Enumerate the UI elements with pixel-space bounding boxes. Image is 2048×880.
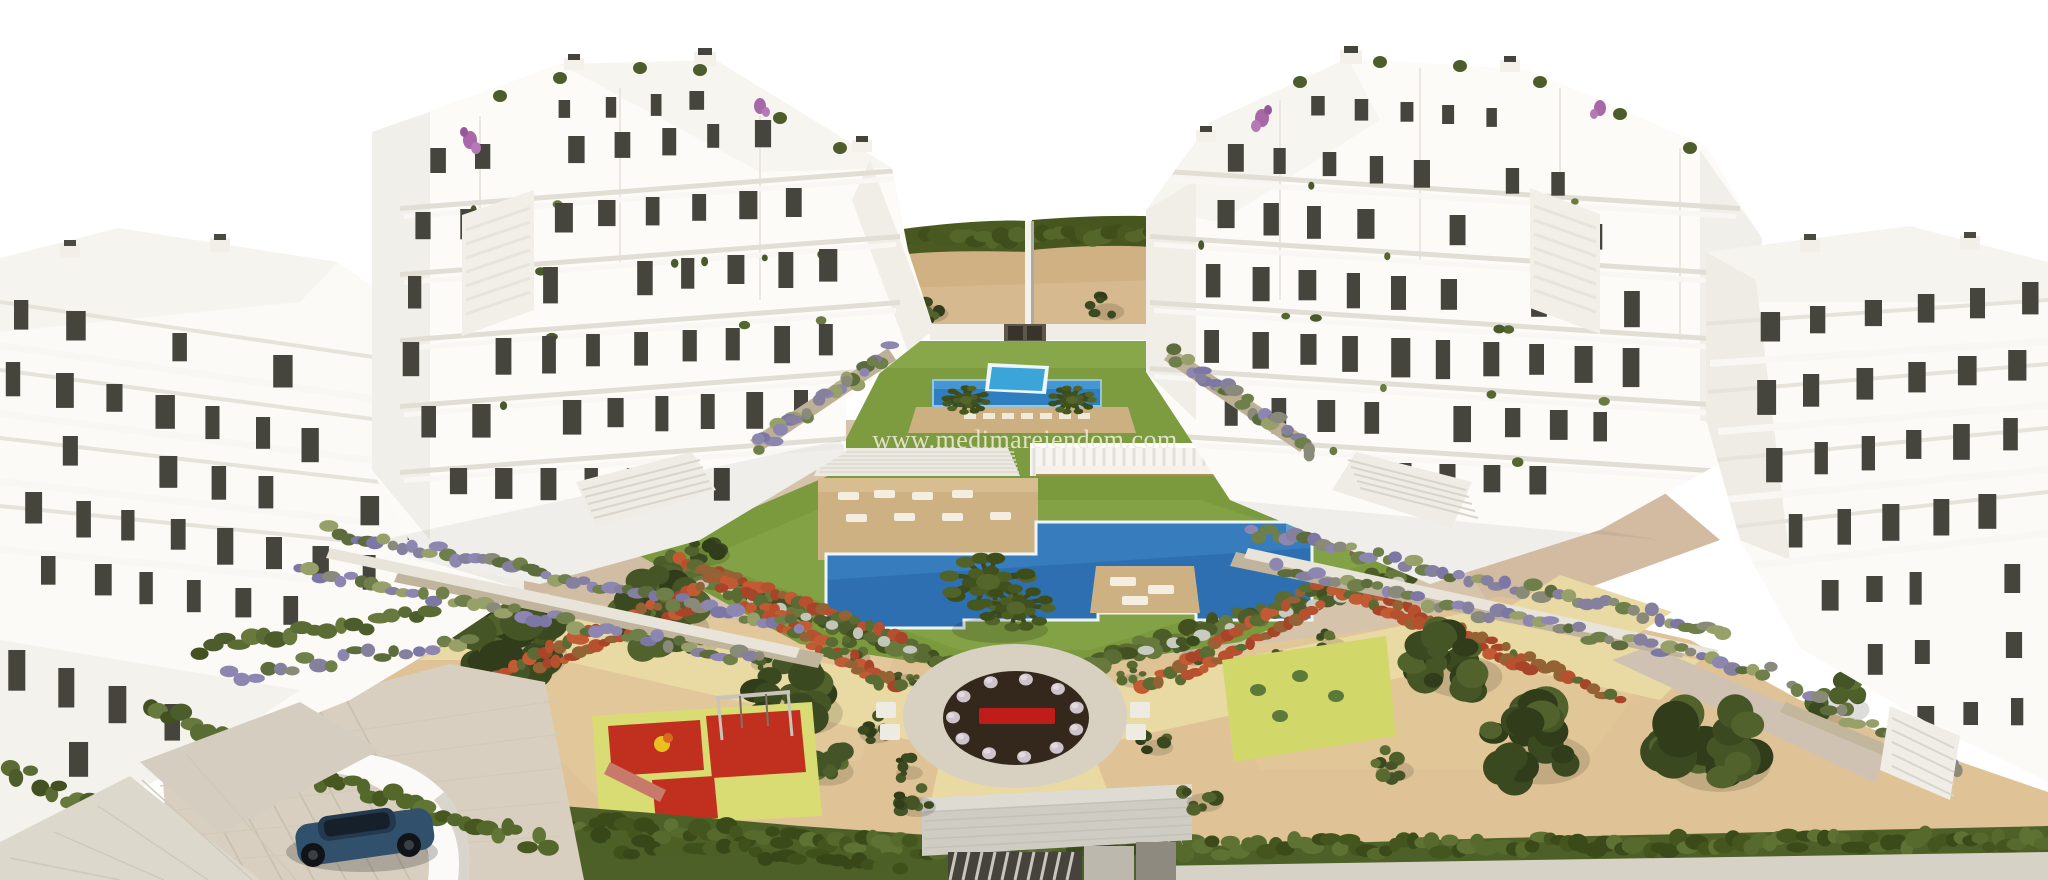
svg-text:www.medimareiendom.com: www.medimareiendom.com [872, 425, 1177, 454]
